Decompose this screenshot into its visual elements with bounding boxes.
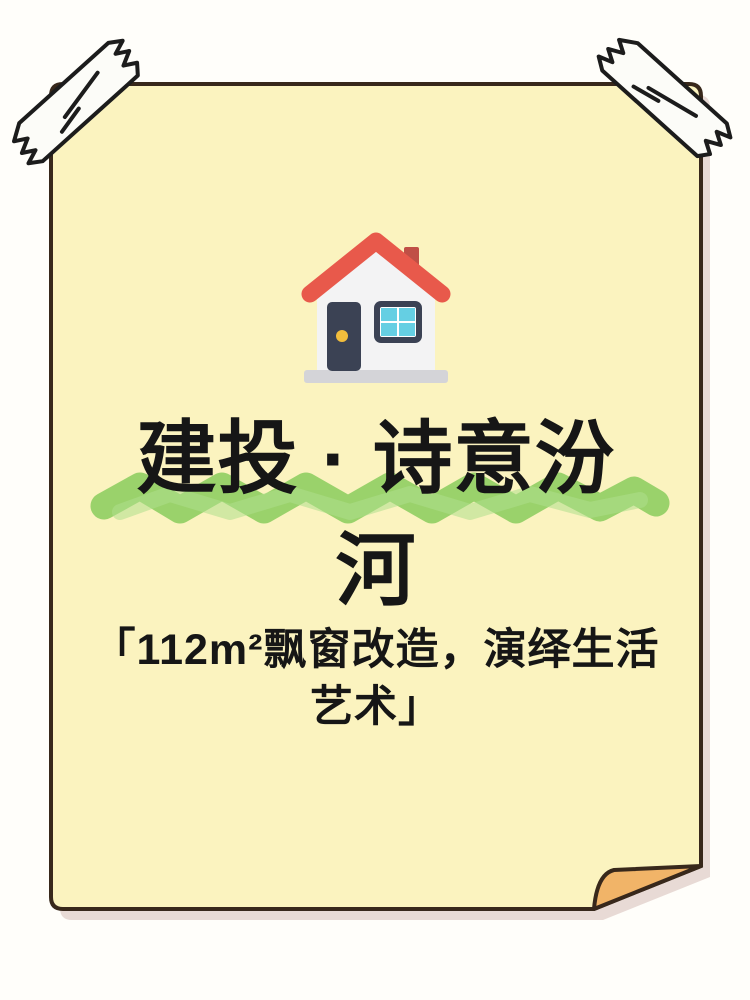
house-doorknob bbox=[336, 330, 348, 342]
title-line-1: 建投 · 诗意汾 bbox=[51, 403, 701, 515]
poster: 建投 · 诗意汾 河 「112m²飘窗改造，演绎生活 艺术」 bbox=[0, 0, 750, 1000]
poster-title: 建投 · 诗意汾 河 bbox=[51, 403, 701, 627]
subtitle-line-1: 「112m²飘窗改造，演绎生活 bbox=[51, 622, 701, 679]
house-foundation bbox=[304, 370, 448, 383]
poster-subtitle: 「112m²飘窗改造，演绎生活 艺术」 bbox=[51, 622, 701, 736]
title-line-2: 河 bbox=[51, 515, 701, 627]
subtitle-line-2: 艺术」 bbox=[51, 679, 701, 736]
house-window bbox=[374, 301, 422, 343]
page-curl bbox=[594, 866, 701, 909]
